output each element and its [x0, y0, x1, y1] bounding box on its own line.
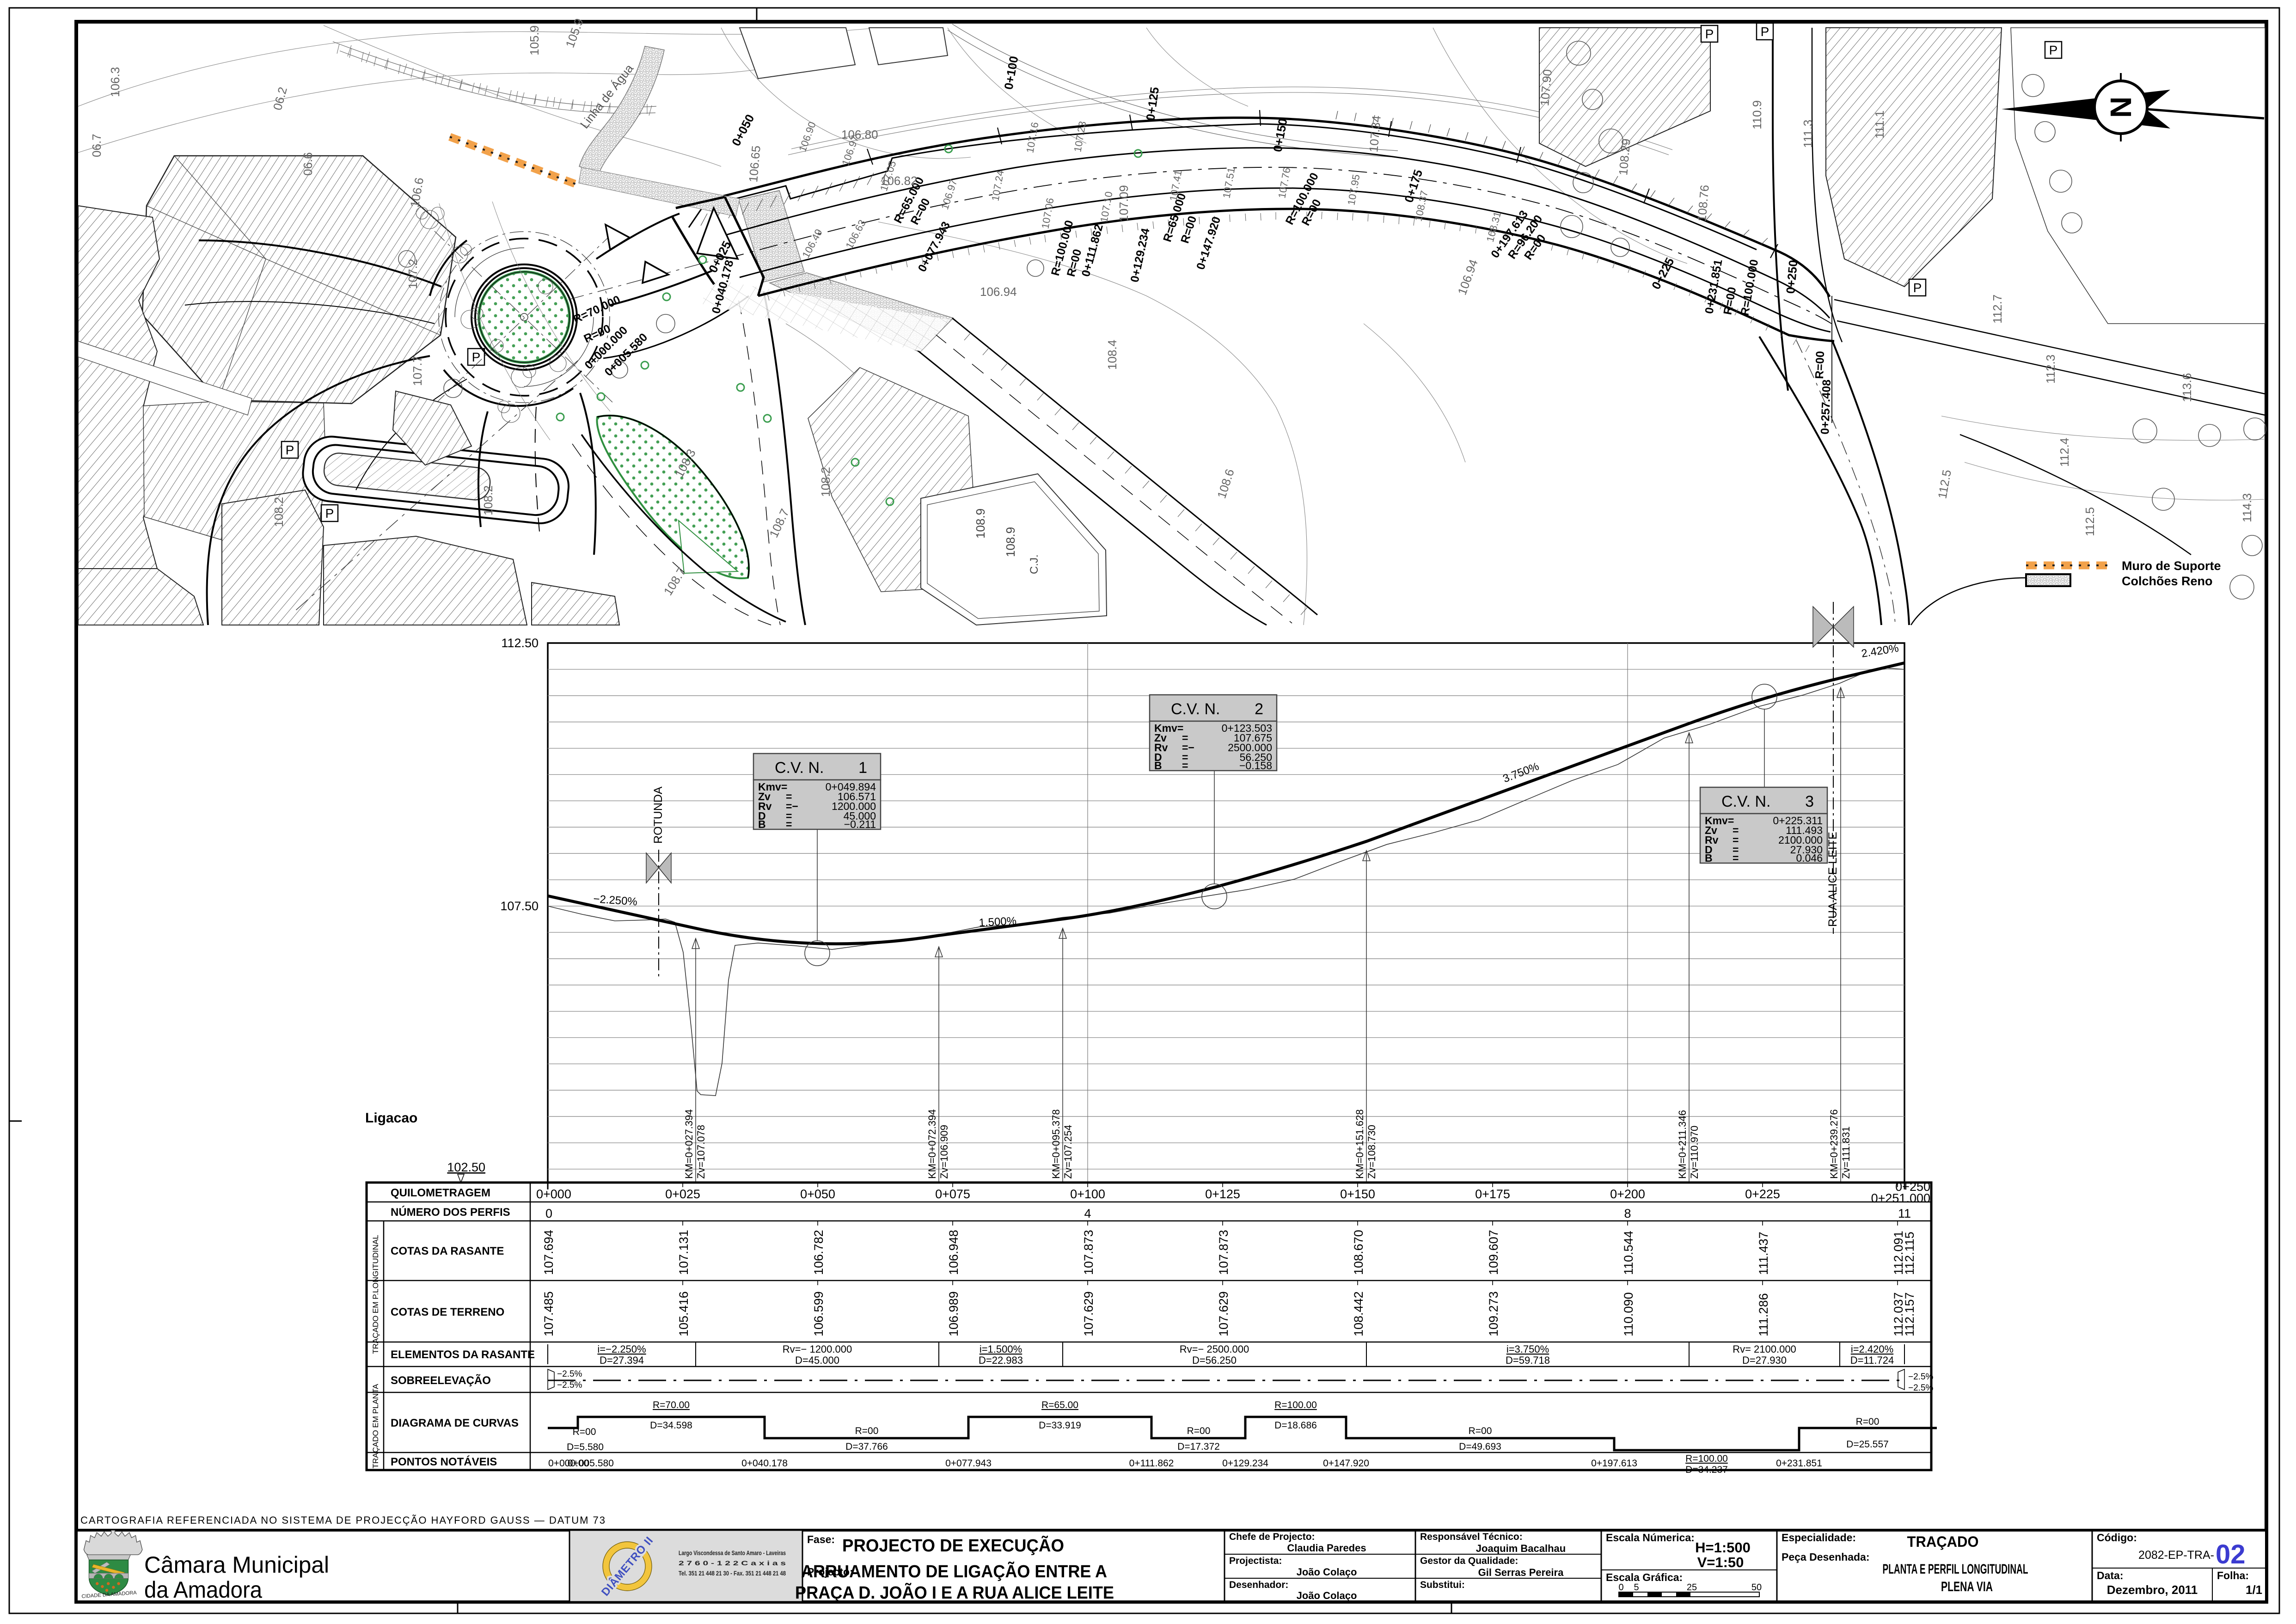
svg-text:C.V. N.: C.V. N. [1721, 793, 1770, 810]
svg-text:Chefe de Projecto:: Chefe de Projecto: [1229, 1532, 1315, 1542]
svg-text:D=27.394: D=27.394 [600, 1354, 644, 1366]
svg-text:R=65.00: R=65.00 [1041, 1400, 1078, 1410]
svg-text:ELEMENTOS DA RASANTE: ELEMENTOS DA RASANTE [391, 1348, 535, 1361]
svg-text:106.94: 106.94 [980, 285, 1017, 299]
svg-text:Rv=− 1200.000: Rv=− 1200.000 [783, 1343, 852, 1355]
svg-text:111.1: 111.1 [1873, 110, 1886, 139]
svg-text:R=00: R=00 [1187, 1426, 1211, 1436]
svg-text:106.3: 106.3 [108, 67, 122, 97]
svg-text:R=00: R=00 [573, 1427, 596, 1437]
svg-text:25: 25 [1687, 1582, 1697, 1593]
svg-text:0+231.851: 0+231.851 [1776, 1458, 1822, 1469]
svg-text:107.629: 107.629 [1217, 1291, 1231, 1336]
svg-text:Largo Viscondessa de Santo Ama: Largo Viscondessa de Santo Amaro - Lavei… [679, 1549, 786, 1557]
svg-text:0+257.408: 0+257.408 [1818, 379, 1833, 435]
svg-text:D=25.557: D=25.557 [1846, 1439, 1889, 1450]
svg-text:TRAÇADO: TRAÇADO [1907, 1533, 1979, 1550]
svg-text:Claudia Paredes: Claudia Paredes [1287, 1542, 1366, 1554]
svg-text:112.5: 112.5 [2083, 507, 2097, 536]
svg-text:5: 5 [1634, 1582, 1639, 1593]
svg-text:R=00: R=00 [1469, 1426, 1492, 1436]
svg-text:107.50: 107.50 [500, 899, 539, 913]
svg-text:D=22.983: D=22.983 [979, 1354, 1023, 1366]
svg-text:N: N [2104, 97, 2137, 118]
svg-text:−2.5%: −2.5% [557, 1369, 582, 1379]
svg-text:0+200: 0+200 [1610, 1187, 1645, 1201]
svg-text:111.286: 111.286 [1757, 1293, 1770, 1336]
svg-text:COTAS DE TERRENO: COTAS DE TERRENO [391, 1306, 504, 1318]
svg-text:1: 1 [858, 759, 867, 777]
svg-text:=: = [1182, 760, 1188, 772]
svg-text:106.989: 106.989 [947, 1291, 961, 1336]
svg-text:KM=0+151.628: KM=0+151.628 [1354, 1109, 1365, 1179]
svg-text:112.50: 112.50 [501, 636, 539, 650]
svg-text:107.2: 107.2 [406, 259, 420, 289]
svg-text:i=3.750%: i=3.750% [1506, 1343, 1549, 1355]
svg-text:D=33.919: D=33.919 [1039, 1420, 1081, 1431]
svg-text:Especialidade:: Especialidade: [1782, 1532, 1856, 1544]
svg-text:D=59.718: D=59.718 [1506, 1354, 1550, 1366]
svg-text:R=100.00: R=100.00 [1274, 1400, 1317, 1410]
svg-text:RUA ALICE LEITE: RUA ALICE LEITE [1826, 832, 1839, 927]
svg-text:0+075: 0+075 [935, 1187, 970, 1201]
svg-text:D=17.372: D=17.372 [1177, 1441, 1220, 1452]
svg-text:R=100.00: R=100.00 [1685, 1453, 1728, 1464]
svg-text:Gestor da Qualidade:: Gestor da Qualidade: [1420, 1556, 1518, 1566]
svg-text:Fase:: Fase: [807, 1533, 835, 1545]
svg-text:Rv= 2100.000: Rv= 2100.000 [1733, 1343, 1796, 1355]
svg-text:107.09: 107.09 [1117, 185, 1131, 222]
svg-text:107.629: 107.629 [1082, 1291, 1096, 1336]
svg-text:Tel. 351 21 448 21 30 - Fax. 3: Tel. 351 21 448 21 30 - Fax. 351 21 448 … [679, 1569, 786, 1577]
svg-text:−0.211: −0.211 [844, 818, 876, 830]
svg-text:Ligacao: Ligacao [365, 1110, 417, 1126]
svg-text:108.9: 108.9 [1004, 527, 1017, 557]
svg-text:0+129.234: 0+129.234 [1222, 1458, 1268, 1469]
svg-text:i=1.500%: i=1.500% [980, 1343, 1022, 1355]
svg-text:TRAÇADO EM P.LONGITUDINAL: TRAÇADO EM P.LONGITUDINAL [371, 1235, 380, 1354]
svg-text:P: P [1705, 27, 1714, 41]
svg-text:50: 50 [1751, 1582, 1762, 1593]
svg-text:112.7: 112.7 [1990, 294, 2004, 324]
svg-text:C.V. N.: C.V. N. [1171, 700, 1220, 718]
svg-text:0+225: 0+225 [1745, 1187, 1780, 1201]
svg-text:B: B [1154, 760, 1162, 772]
svg-text:ROTUNDA: ROTUNDA [652, 786, 665, 844]
svg-text:B: B [1705, 852, 1713, 864]
svg-text:Muro de Suporte: Muro de Suporte [2122, 559, 2221, 573]
svg-text:D=5.580: D=5.580 [567, 1442, 604, 1452]
svg-text:112.3: 112.3 [2044, 355, 2057, 384]
svg-text:i=−2.250%: i=−2.250% [597, 1343, 646, 1355]
svg-text:Escala Númerica:: Escala Númerica: [1606, 1532, 1695, 1544]
svg-text:TRAÇADO EM PLANTA: TRAÇADO EM PLANTA [371, 1384, 380, 1469]
svg-text:Zv=107.254: Zv=107.254 [1062, 1125, 1074, 1179]
svg-text:da Amadora: da Amadora [144, 1577, 262, 1603]
svg-text:P: P [1913, 281, 1922, 295]
svg-text:=: = [1733, 852, 1739, 864]
svg-text:0+175: 0+175 [1475, 1187, 1510, 1201]
svg-text:P: P [2049, 43, 2058, 57]
svg-text:−2.5%: −2.5% [1908, 1383, 1934, 1393]
svg-text:107.873: 107.873 [1217, 1230, 1231, 1275]
svg-text:2 7 6 0 - 1 2 2 C a x i a: 2 7 6 0 - 1 2 2 C a x i a s [679, 1559, 786, 1567]
svg-text:112.115: 112.115 [1903, 1232, 1916, 1275]
svg-text:D=18.686: D=18.686 [1274, 1420, 1317, 1431]
svg-text:0+147.920: 0+147.920 [1323, 1458, 1369, 1469]
svg-text:B: B [758, 818, 766, 830]
svg-text:0+100: 0+100 [1070, 1187, 1105, 1201]
svg-text:0+125: 0+125 [1205, 1187, 1240, 1201]
svg-text:R=00: R=00 [1813, 351, 1827, 379]
svg-text:PONTOS NOTÁVEIS: PONTOS NOTÁVEIS [391, 1455, 497, 1468]
svg-text:Peça Desenhada:: Peça Desenhada: [1782, 1551, 1869, 1563]
svg-text:CARTOGRAFIA REFERENCIADA NO SI: CARTOGRAFIA REFERENCIADA NO SISTEMA DE P… [80, 1514, 606, 1526]
svg-text:P: P [325, 506, 334, 521]
svg-text:110.090: 110.090 [1622, 1292, 1635, 1336]
svg-text:0.046: 0.046 [1796, 852, 1823, 864]
svg-text:KM=0+072.394: KM=0+072.394 [926, 1109, 938, 1179]
svg-text:106.782: 106.782 [812, 1230, 826, 1275]
svg-text:1.500%: 1.500% [979, 915, 1017, 929]
svg-text:COTAS DA RASANTE: COTAS DA RASANTE [391, 1245, 504, 1257]
svg-text:Zv=108.730: Zv=108.730 [1366, 1125, 1378, 1179]
svg-text:108.4: 108.4 [1105, 340, 1119, 370]
svg-text:114.3: 114.3 [2240, 493, 2254, 522]
svg-text:2: 2 [1255, 700, 1263, 718]
svg-text:106.948: 106.948 [947, 1230, 961, 1275]
svg-text:−2.5%: −2.5% [1908, 1372, 1934, 1382]
svg-text:8: 8 [1624, 1207, 1631, 1220]
svg-text:111.437: 111.437 [1757, 1232, 1770, 1275]
svg-text:KM=0+027.394: KM=0+027.394 [683, 1109, 695, 1179]
svg-text:Projectista:: Projectista: [1229, 1556, 1282, 1566]
svg-text:Joaquim Bacalhau: Joaquim Bacalhau [1476, 1543, 1566, 1554]
svg-text:PRAÇA D. JOÃO I E A RUA ALICE: PRAÇA D. JOÃO I E A RUA ALICE LEITE [795, 1582, 1114, 1603]
svg-text:108.2: 108.2 [481, 485, 495, 515]
svg-text:112.4: 112.4 [2057, 438, 2071, 467]
svg-text:Zv=107.078: Zv=107.078 [695, 1125, 707, 1179]
svg-text:2082-EP-TRA-: 2082-EP-TRA- [2138, 1549, 2214, 1562]
svg-text:=: = [786, 818, 792, 830]
svg-text:108.442: 108.442 [1352, 1291, 1365, 1336]
svg-text:Zv=110.970: Zv=110.970 [1689, 1126, 1700, 1179]
svg-text:Data:: Data: [2097, 1569, 2124, 1581]
svg-text:0: 0 [545, 1207, 552, 1220]
svg-text:06.7: 06.7 [90, 134, 104, 157]
svg-text:108.2: 108.2 [819, 467, 833, 497]
svg-text:06.6: 06.6 [301, 152, 315, 176]
svg-text:D=34.598: D=34.598 [650, 1420, 692, 1431]
svg-text:QUILOMETRAGEM: QUILOMETRAGEM [391, 1187, 490, 1199]
svg-text:107.485: 107.485 [542, 1291, 556, 1336]
svg-text:3: 3 [1805, 793, 1814, 810]
svg-text:i=2.420%: i=2.420% [1851, 1343, 1893, 1355]
svg-text:PLENA VIA: PLENA VIA [1941, 1579, 1993, 1594]
svg-text:Substitui:: Substitui: [1420, 1580, 1465, 1590]
svg-text:Responsável Técnico:: Responsável Técnico: [1420, 1532, 1523, 1542]
svg-text:113.6: 113.6 [2180, 373, 2194, 402]
svg-text:Zv=111.831: Zv=111.831 [1840, 1126, 1852, 1179]
svg-text:C.J.: C.J. [1028, 554, 1041, 574]
svg-text:0+111.862: 0+111.862 [1129, 1458, 1174, 1469]
svg-text:KM=0+095.378: KM=0+095.378 [1050, 1109, 1062, 1179]
svg-text:107.7: 107.7 [410, 356, 424, 386]
svg-text:R=70.00: R=70.00 [653, 1400, 690, 1410]
svg-text:0+250: 0+250 [1783, 259, 1800, 294]
svg-text:0+000: 0+000 [536, 1187, 571, 1201]
svg-text:ARRUAMENTO DE LIGAÇÃO ENTRE A: ARRUAMENTO DE LIGAÇÃO ENTRE A [801, 1561, 1107, 1581]
svg-text:Gil Serras Pereira: Gil Serras Pereira [1478, 1567, 1564, 1578]
svg-text:P: P [286, 443, 294, 457]
svg-text:P: P [1761, 25, 1769, 39]
svg-text:0+025: 0+025 [665, 1187, 700, 1201]
svg-text:107.873: 107.873 [1082, 1230, 1096, 1275]
svg-text:Colchões Reno: Colchões Reno [2122, 574, 2213, 588]
svg-text:PROJECTO DE EXECUÇÃO: PROJECTO DE EXECUÇÃO [842, 1535, 1064, 1556]
svg-text:0+050: 0+050 [800, 1187, 835, 1201]
svg-text:João Colaço: João Colaço [1297, 1590, 1357, 1601]
svg-text:−2.5%: −2.5% [557, 1380, 582, 1390]
svg-text:0: 0 [1618, 1582, 1623, 1593]
svg-text:107.694: 107.694 [542, 1230, 556, 1275]
svg-text:0+077.943: 0+077.943 [945, 1458, 992, 1469]
svg-text:112.157: 112.157 [1903, 1292, 1916, 1336]
svg-text:D=56.250: D=56.250 [1192, 1354, 1237, 1366]
svg-text:108.2: 108.2 [272, 497, 286, 527]
svg-text:110.544: 110.544 [1622, 1231, 1635, 1275]
svg-text:11: 11 [1898, 1207, 1911, 1220]
svg-text:0+251.000: 0+251.000 [1871, 1191, 1930, 1205]
svg-text:Código:: Código: [2097, 1532, 2137, 1544]
svg-text:Desenhador:: Desenhador: [1229, 1580, 1288, 1590]
svg-text:Rv=− 2500.000: Rv=− 2500.000 [1180, 1343, 1249, 1355]
svg-text:107.131: 107.131 [677, 1230, 691, 1275]
svg-text:NÚMERO DOS PERFIS: NÚMERO DOS PERFIS [391, 1206, 510, 1219]
svg-text:Câmara Municipal: Câmara Municipal [144, 1552, 329, 1578]
svg-text:PLANTA E PERFIL LONGITUDINAL: PLANTA E PERFIL LONGITUDINAL [1883, 1562, 2028, 1577]
svg-text:0+197.613: 0+197.613 [1591, 1458, 1637, 1469]
svg-text:Dezembro, 2011: Dezembro, 2011 [2107, 1583, 2198, 1597]
svg-text:SOBREELEVAÇÃO: SOBREELEVAÇÃO [391, 1374, 491, 1387]
svg-text:105.416: 105.416 [677, 1291, 691, 1336]
svg-text:KM=0+211.346: KM=0+211.346 [1677, 1110, 1688, 1179]
svg-text:Folha:: Folha: [2217, 1569, 2249, 1581]
svg-text:D=27.930: D=27.930 [1742, 1354, 1787, 1366]
svg-text:D=49.693: D=49.693 [1459, 1441, 1501, 1452]
svg-text:Zv=106.909: Zv=106.909 [938, 1125, 950, 1179]
svg-text:C.V. N.: C.V. N. [775, 759, 824, 777]
svg-text:110.9: 110.9 [1750, 100, 1764, 129]
svg-text:D=11.724: D=11.724 [1850, 1354, 1894, 1366]
svg-text:1/1: 1/1 [2246, 1583, 2262, 1597]
svg-text:111.3: 111.3 [1801, 120, 1815, 148]
svg-text:R=00: R=00 [855, 1426, 879, 1436]
svg-text:02: 02 [2216, 1539, 2246, 1569]
svg-text:0+005.580: 0+005.580 [568, 1458, 614, 1469]
svg-text:106.599: 106.599 [812, 1291, 826, 1336]
svg-text:108.670: 108.670 [1352, 1230, 1365, 1275]
svg-text:109.607: 109.607 [1487, 1230, 1500, 1275]
svg-text:109.273: 109.273 [1487, 1291, 1500, 1336]
svg-text:V=1:50: V=1:50 [1697, 1554, 1744, 1570]
svg-text:P: P [472, 350, 481, 364]
svg-text:0+150: 0+150 [1340, 1187, 1375, 1201]
svg-text:4: 4 [1084, 1207, 1091, 1220]
svg-text:D=34.237: D=34.237 [1685, 1465, 1728, 1475]
svg-text:DIAGRAMA DE CURVAS: DIAGRAMA DE CURVAS [391, 1417, 519, 1429]
svg-text:102.50: 102.50 [447, 1160, 485, 1174]
svg-text:D=37.766: D=37.766 [845, 1441, 888, 1452]
svg-text:KM=0+239.276: KM=0+239.276 [1828, 1109, 1840, 1179]
svg-text:0+040.178: 0+040.178 [741, 1458, 788, 1469]
svg-text:H=1:500: H=1:500 [1695, 1539, 1751, 1556]
svg-text:João Colaço: João Colaço [1297, 1566, 1357, 1578]
svg-text:−0.158: −0.158 [1239, 760, 1272, 772]
svg-text:105.9: 105.9 [527, 25, 541, 55]
svg-text:108.9: 108.9 [974, 509, 987, 539]
svg-text:Escala Gráfica:: Escala Gráfica: [1606, 1571, 1683, 1583]
svg-text:D=45.000: D=45.000 [795, 1354, 839, 1366]
svg-text:R=00: R=00 [1856, 1416, 1880, 1427]
